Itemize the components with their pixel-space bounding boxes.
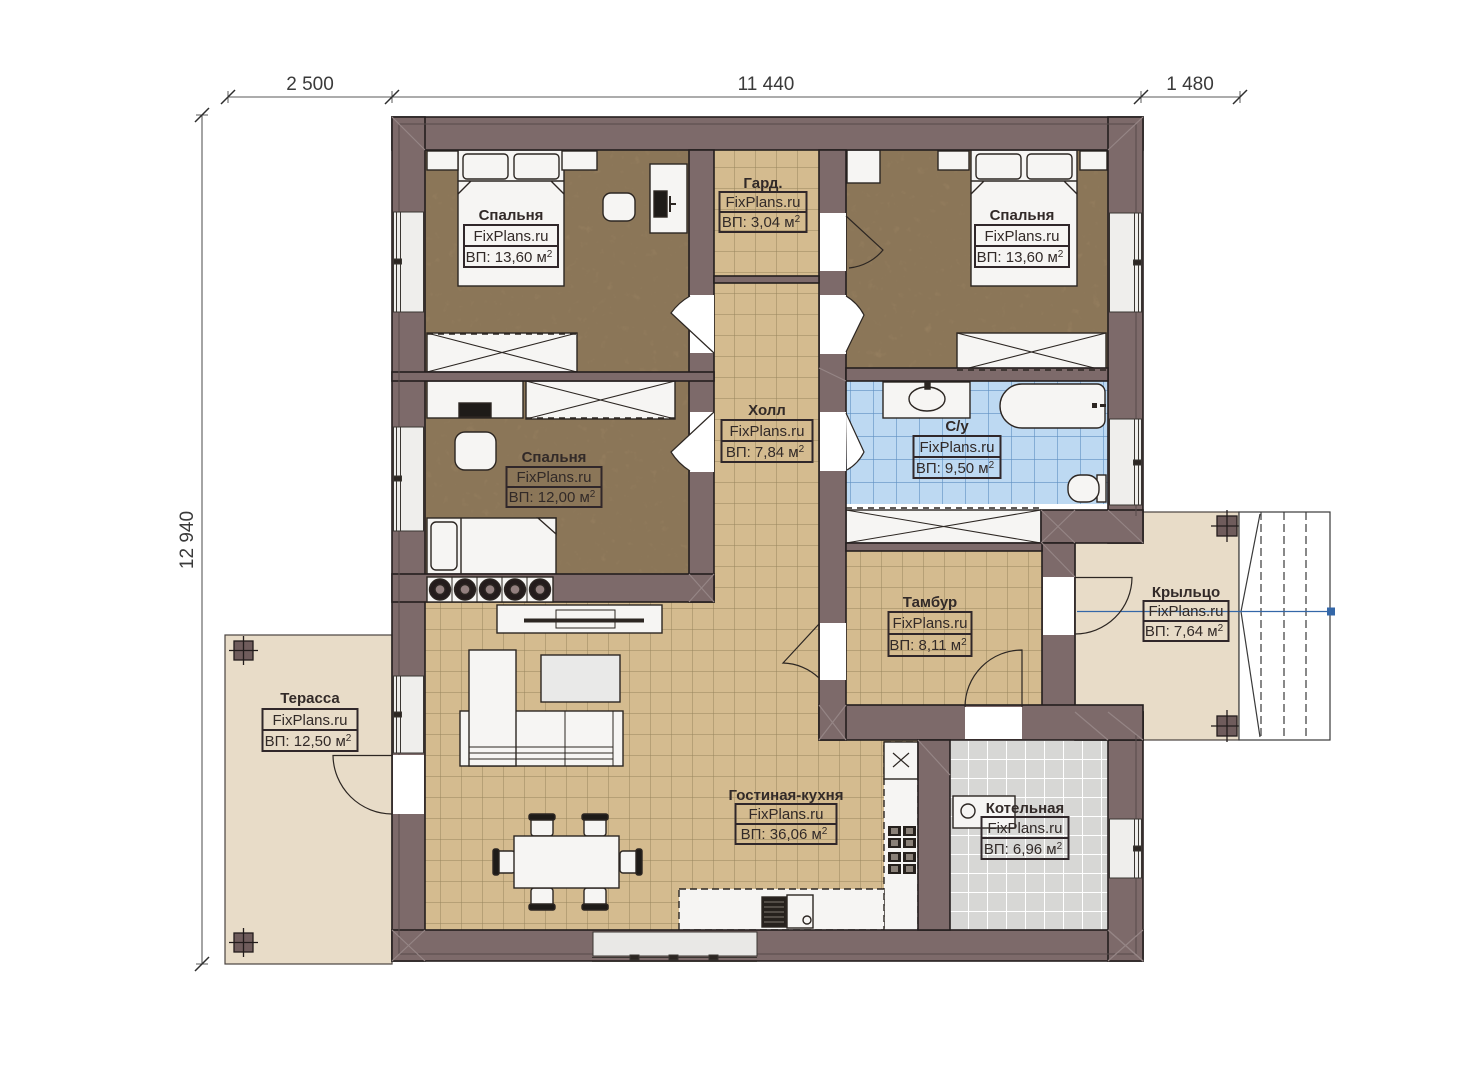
svg-text:FixPlans.ru: FixPlans.ru xyxy=(272,712,347,729)
svg-text:ВП: 13,60 м2: ВП: 13,60 м2 xyxy=(977,249,1064,266)
svg-text:FixPlans.ru: FixPlans.ru xyxy=(516,469,591,486)
svg-text:ВП: 8,11 м2: ВП: 8,11 м2 xyxy=(889,637,967,654)
svg-text:Спальня: Спальня xyxy=(522,449,587,466)
svg-text:С/у: С/у xyxy=(945,418,969,435)
svg-text:Холл: Холл xyxy=(748,402,786,419)
svg-text:ВП: 13,60 м2: ВП: 13,60 м2 xyxy=(466,249,553,266)
svg-text:ВП: 9,50 м2: ВП: 9,50 м2 xyxy=(916,460,995,477)
svg-text:FixPlans.ru: FixPlans.ru xyxy=(892,615,967,632)
svg-text:Гостиная-кухня: Гостиная-кухня xyxy=(729,787,844,804)
svg-text:Крыльцо: Крыльцо xyxy=(1152,584,1220,601)
svg-text:ВП: 12,50 м2: ВП: 12,50 м2 xyxy=(265,733,352,750)
svg-text:FixPlans.ru: FixPlans.ru xyxy=(473,228,548,245)
svg-text:ВП: 12,00 м2: ВП: 12,00 м2 xyxy=(509,489,596,506)
svg-text:Спальня: Спальня xyxy=(479,207,544,224)
svg-text:11 440: 11 440 xyxy=(738,74,795,95)
svg-text:FixPlans.ru: FixPlans.ru xyxy=(987,820,1062,837)
svg-text:Спальня: Спальня xyxy=(990,207,1055,224)
svg-text:ВП: 7,64 м2: ВП: 7,64 м2 xyxy=(1145,623,1224,640)
svg-text:FixPlans.ru: FixPlans.ru xyxy=(748,806,823,823)
svg-text:FixPlans.ru: FixPlans.ru xyxy=(919,439,994,456)
svg-text:Гард.: Гард. xyxy=(743,175,782,192)
svg-text:ВП: 6,96 м2: ВП: 6,96 м2 xyxy=(984,841,1063,858)
svg-text:Котельная: Котельная xyxy=(986,800,1065,817)
svg-text:FixPlans.ru: FixPlans.ru xyxy=(1148,603,1223,620)
svg-text:ВП: 3,04 м2: ВП: 3,04 м2 xyxy=(722,214,801,231)
svg-text:ВП: 7,84 м2: ВП: 7,84 м2 xyxy=(726,444,805,461)
svg-text:FixPlans.ru: FixPlans.ru xyxy=(984,228,1059,245)
svg-text:FixPlans.ru: FixPlans.ru xyxy=(725,194,800,211)
svg-text:FixPlans.ru: FixPlans.ru xyxy=(729,423,804,440)
svg-text:Терасса: Терасса xyxy=(280,690,340,707)
svg-text:12 940: 12 940 xyxy=(177,511,198,569)
svg-text:1 480: 1 480 xyxy=(1166,74,1214,95)
svg-text:Тамбур: Тамбур xyxy=(903,594,957,611)
svg-text:2 500: 2 500 xyxy=(286,74,334,95)
svg-text:ВП: 36,06 м2: ВП: 36,06 м2 xyxy=(741,826,828,843)
